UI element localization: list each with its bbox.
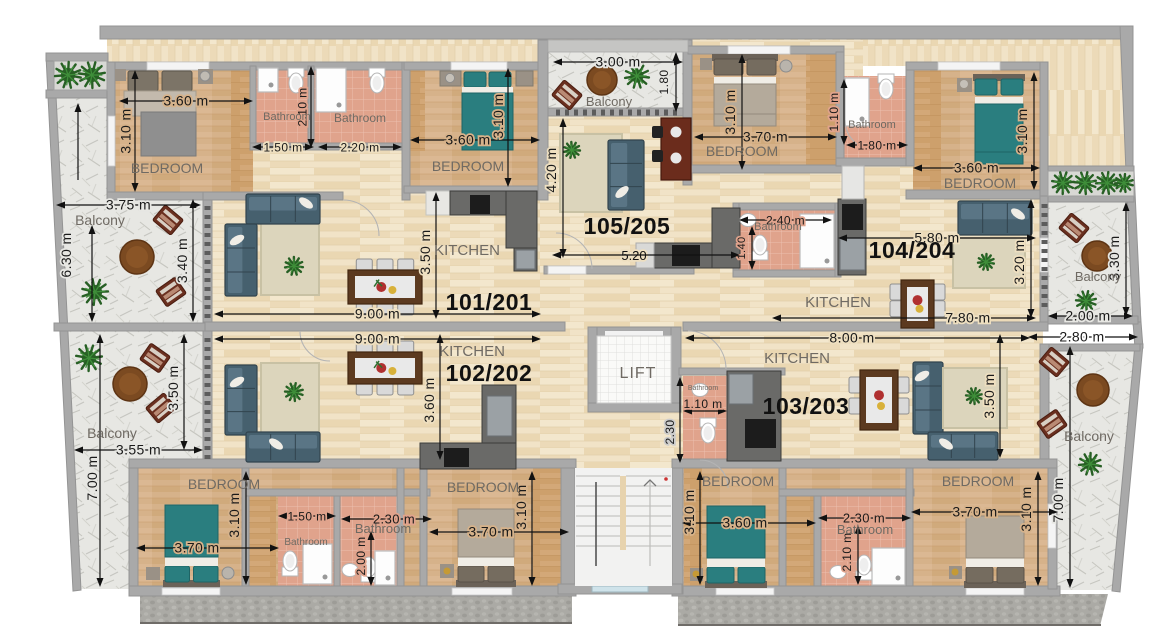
svg-text:Balcony: Balcony (1064, 428, 1114, 444)
svg-text:3.50 m: 3.50 m (165, 365, 181, 410)
svg-text:9.00 m: 9.00 m (355, 306, 400, 322)
svg-text:2.80 m: 2.80 m (1059, 329, 1104, 345)
svg-text:Bathroom: Bathroom (284, 537, 327, 548)
svg-text:7.00 m: 7.00 m (1050, 477, 1066, 522)
svg-text:3.10 m: 3.10 m (681, 489, 697, 534)
svg-text:Bathroom: Bathroom (837, 522, 893, 537)
svg-text:1.40: 1.40 (736, 236, 748, 259)
svg-text:BEDROOM: BEDROOM (706, 143, 778, 159)
svg-text:3.60 m: 3.60 m (954, 160, 999, 176)
svg-text:Balcony: Balcony (586, 94, 633, 109)
svg-text:1.80: 1.80 (657, 70, 671, 95)
svg-text:3.70 m: 3.70 m (952, 504, 997, 520)
svg-text:8.00 m: 8.00 m (829, 330, 874, 346)
svg-text:BEDROOM: BEDROOM (702, 473, 774, 489)
svg-text:104/204: 104/204 (869, 237, 956, 263)
svg-text:6.30 m: 6.30 m (58, 232, 74, 277)
svg-text:2.20 m: 2.20 m (340, 141, 379, 155)
svg-text:Balcony: Balcony (75, 212, 125, 228)
svg-text:2.00 m: 2.00 m (1065, 308, 1110, 324)
svg-text:3.60 m: 3.60 m (722, 515, 767, 531)
svg-text:Bathroom: Bathroom (263, 111, 311, 123)
svg-text:BEDROOM: BEDROOM (447, 479, 519, 495)
svg-text:KITCHEN: KITCHEN (434, 242, 500, 259)
svg-text:102/202: 102/202 (446, 360, 533, 386)
svg-text:9.00 m: 9.00 m (355, 331, 400, 347)
svg-text:3.10 m: 3.10 m (722, 89, 738, 134)
svg-text:3.10 m: 3.10 m (490, 93, 506, 138)
svg-text:3.10 m: 3.10 m (118, 108, 134, 153)
svg-text:3.75 m: 3.75 m (106, 197, 151, 213)
svg-text:3.50 m: 3.50 m (981, 373, 997, 418)
svg-text:3.50 m: 3.50 m (417, 229, 433, 274)
svg-text:3.00 m: 3.00 m (595, 54, 640, 70)
svg-text:2.00 m: 2.00 m (354, 536, 368, 575)
svg-text:1.80 m: 1.80 m (857, 139, 896, 153)
svg-text:3.40 m: 3.40 m (174, 238, 190, 283)
svg-text:3.60 m: 3.60 m (445, 132, 490, 148)
svg-text:3.70 m: 3.70 m (174, 540, 219, 556)
svg-text:Bathroom: Bathroom (334, 111, 386, 125)
svg-text:2.10 m: 2.10 m (840, 532, 854, 571)
svg-text:3.60 m: 3.60 m (421, 377, 437, 422)
svg-text:BEDROOM: BEDROOM (131, 160, 203, 176)
svg-text:3.55 m: 3.55 m (116, 442, 161, 458)
svg-text:3.70 m: 3.70 m (468, 524, 513, 540)
svg-text:LIFT: LIFT (620, 365, 657, 382)
svg-text:101/201: 101/201 (446, 289, 533, 315)
svg-text:3.10 m: 3.10 m (1018, 486, 1034, 531)
svg-text:7.80 m: 7.80 m (945, 310, 990, 326)
svg-text:7.00 m: 7.00 m (84, 455, 100, 500)
svg-text:Bathroom: Bathroom (688, 385, 719, 392)
svg-text:3.60 m: 3.60 m (163, 93, 208, 109)
svg-text:Balcony: Balcony (1075, 269, 1122, 284)
svg-text:BEDROOM: BEDROOM (188, 476, 260, 492)
svg-text:1.10 m: 1.10 m (683, 397, 722, 411)
svg-text:Balcony: Balcony (87, 425, 137, 441)
svg-text:1.50 m: 1.50 m (287, 510, 326, 524)
svg-text:Bathroom: Bathroom (355, 521, 411, 536)
svg-text:103/203: 103/203 (763, 393, 850, 419)
svg-text:1.50 m: 1.50 m (263, 141, 302, 155)
svg-text:KITCHEN: KITCHEN (439, 343, 505, 360)
svg-text:KITCHEN: KITCHEN (805, 294, 871, 311)
svg-text:Bathroom: Bathroom (754, 221, 802, 233)
svg-text:4.20 m: 4.20 m (543, 147, 559, 192)
svg-text:3.10 m: 3.10 m (1014, 108, 1030, 153)
svg-text:1.10 m: 1.10 m (827, 92, 841, 131)
svg-text:Bathroom: Bathroom (848, 119, 896, 131)
svg-text:105/205: 105/205 (584, 213, 671, 239)
svg-text:3.20 m: 3.20 m (1011, 239, 1027, 284)
svg-text:2.30: 2.30 (663, 420, 677, 445)
svg-text:BEDROOM: BEDROOM (942, 473, 1014, 489)
svg-text:BEDROOM: BEDROOM (944, 175, 1016, 191)
svg-text:BEDROOM: BEDROOM (432, 158, 504, 174)
svg-text:KITCHEN: KITCHEN (764, 350, 830, 367)
svg-text:3.10 m: 3.10 m (226, 492, 242, 537)
